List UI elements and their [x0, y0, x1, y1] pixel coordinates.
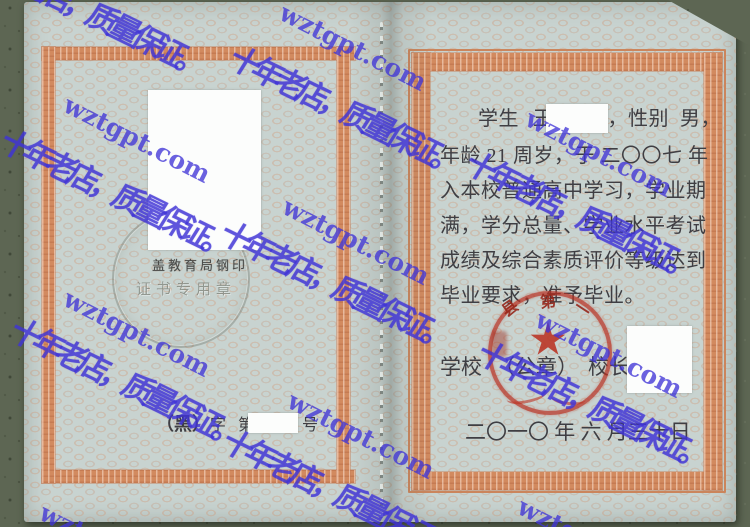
body-line-1: 学生 王 ，性别 男，	[440, 103, 721, 134]
seal-left-character-blur	[492, 331, 507, 357]
body-line-2: 年龄 21 周岁，于 二〇〇七 年	[440, 141, 709, 171]
gender-text: ，性别 男，	[608, 104, 722, 134]
certificate-paper: 证书专用章 盖教育局钢印 （黑） 字 第 号 学生 王 ，性别 男， 年龄 21…	[24, 2, 736, 522]
name-redaction-block	[546, 104, 608, 133]
left-frame-bottom	[42, 470, 355, 483]
student-label: 学生	[440, 104, 519, 134]
left-frame-left	[42, 47, 55, 483]
issue-date: 二〇一〇 年 六 月三十日	[465, 416, 691, 446]
binding-stitch-line	[380, 22, 383, 518]
diploma-photo: 证书专用章 盖教育局钢印 （黑） 字 第 号 学生 王 ，性别 男， 年龄 21…	[0, 0, 750, 527]
embossed-seal-text: 证书专用章	[136, 278, 236, 299]
serial-hao: 号	[302, 411, 318, 435]
left-frame-right	[337, 47, 350, 483]
steel-seal-instruction: 盖教育局钢印	[152, 255, 248, 274]
body-line-4: 满，学分总量、学业水平考试	[440, 211, 707, 241]
principal-redaction-block	[627, 326, 692, 393]
school-label: 学校	[440, 351, 482, 381]
serial-number-line: （黑） 字 第 号	[156, 410, 318, 436]
page-fold	[350, 2, 432, 522]
photo-redaction-block	[148, 90, 261, 250]
serial-bracket: （黑）	[156, 410, 210, 436]
body-line-5: 成绩及综合素质评价等级达到	[440, 246, 707, 276]
serial-redaction-block	[248, 413, 298, 433]
left-frame-top	[42, 47, 355, 60]
serial-zi: 字	[210, 411, 226, 435]
seal-char-di: 第	[539, 287, 557, 312]
body-line-3: 入本校普通高中学习，学业期	[440, 176, 707, 206]
right-frame-bottom	[412, 472, 722, 490]
right-frame-top	[412, 53, 722, 71]
